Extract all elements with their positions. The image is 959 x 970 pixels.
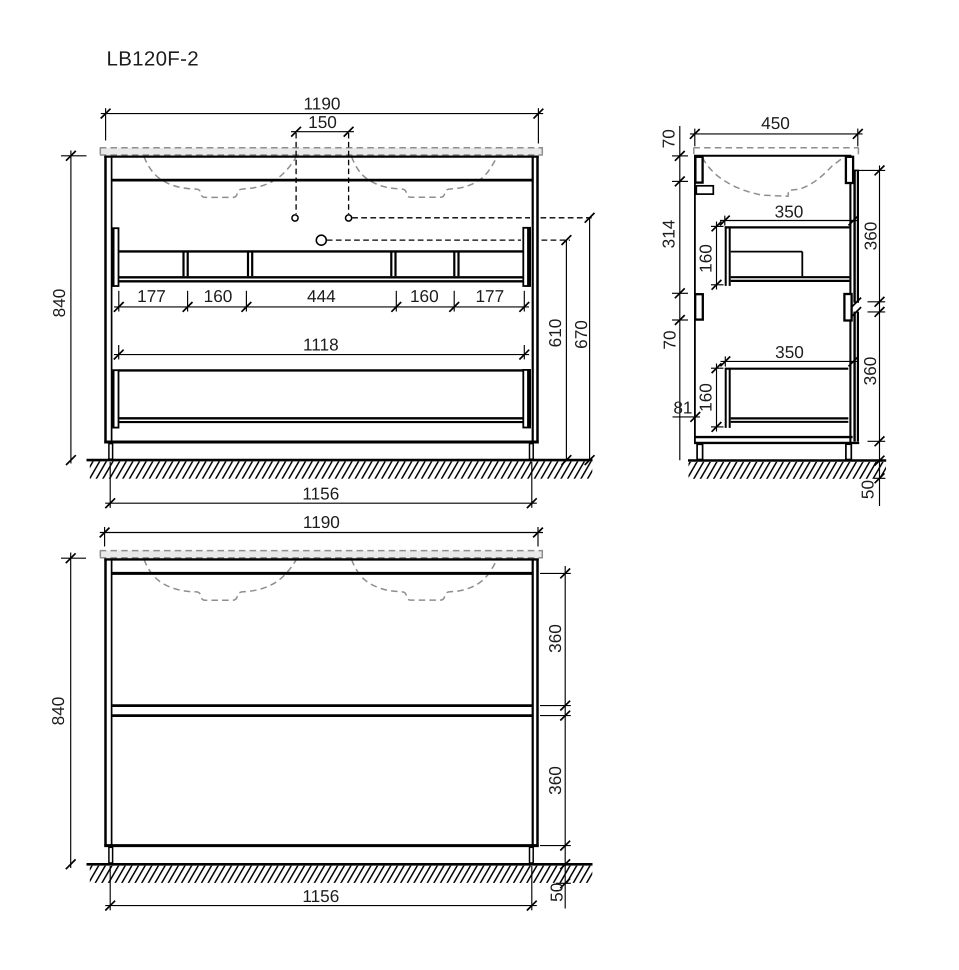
- svg-text:160: 160: [410, 286, 439, 306]
- svg-text:360: 360: [545, 766, 565, 795]
- svg-text:1190: 1190: [304, 93, 341, 113]
- svg-text:50: 50: [857, 480, 877, 499]
- svg-text:1156: 1156: [302, 483, 339, 503]
- svg-text:160: 160: [204, 286, 233, 306]
- svg-text:1118: 1118: [303, 335, 339, 355]
- svg-text:360: 360: [545, 624, 565, 653]
- svg-text:360: 360: [860, 222, 880, 251]
- svg-text:177: 177: [475, 286, 504, 306]
- svg-text:314: 314: [659, 219, 679, 248]
- svg-text:150: 150: [308, 112, 337, 132]
- svg-text:610: 610: [545, 319, 565, 348]
- svg-text:350: 350: [775, 342, 804, 362]
- svg-text:177: 177: [137, 286, 166, 306]
- svg-text:840: 840: [48, 697, 68, 726]
- svg-text:1190: 1190: [303, 512, 340, 532]
- svg-text:350: 350: [775, 202, 804, 222]
- svg-text:450: 450: [761, 113, 790, 133]
- svg-text:70: 70: [659, 129, 679, 148]
- svg-text:840: 840: [49, 289, 69, 318]
- svg-text:670: 670: [571, 320, 591, 349]
- svg-text:444: 444: [307, 286, 336, 306]
- svg-text:50: 50: [547, 883, 567, 902]
- svg-text:160: 160: [696, 244, 716, 273]
- svg-text:360: 360: [860, 357, 880, 386]
- svg-text:1156: 1156: [302, 886, 339, 906]
- svg-text:LB120F-2: LB120F-2: [107, 48, 199, 71]
- svg-text:70: 70: [660, 330, 680, 349]
- svg-text:81: 81: [673, 397, 692, 417]
- svg-text:160: 160: [696, 383, 716, 412]
